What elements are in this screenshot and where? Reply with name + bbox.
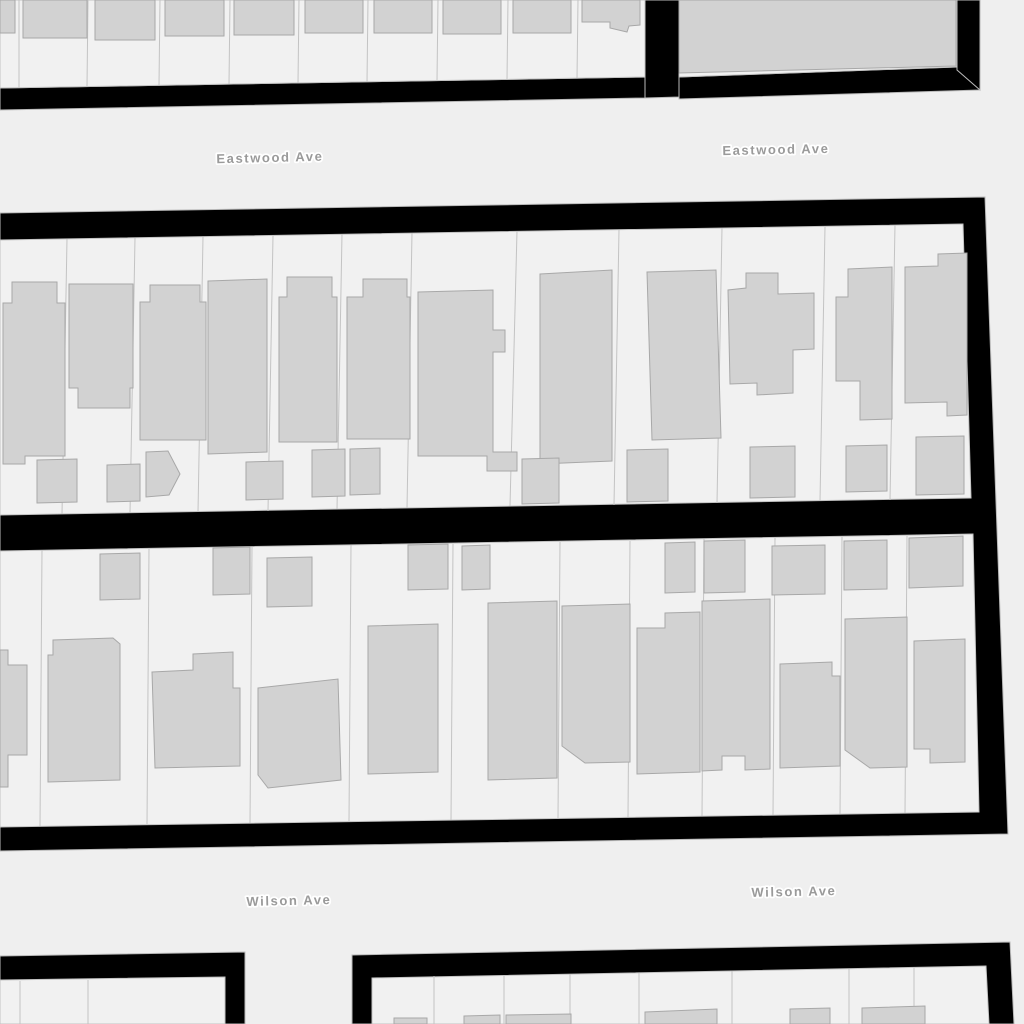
building-footprint [704, 540, 745, 593]
building-footprint [234, 0, 294, 35]
street-label: Wilson Ave [751, 883, 836, 900]
building-footprint [780, 662, 840, 768]
building-footprint [627, 449, 668, 502]
building-footprint [750, 446, 795, 498]
building-footprint [374, 0, 432, 33]
building-footprint [368, 624, 438, 774]
building-footprint [637, 612, 700, 774]
building-footprint [464, 1015, 500, 1024]
building-footprint [540, 270, 612, 464]
street-label: Eastwood Ave [722, 141, 829, 158]
building-footprint [679, 0, 956, 73]
building-footprint [702, 599, 770, 771]
building-footprint [846, 445, 887, 492]
building-footprint [645, 1009, 717, 1024]
building-footprint [909, 536, 963, 588]
building-footprint [140, 285, 206, 440]
building-footprint [95, 0, 155, 40]
building-footprint [506, 1014, 571, 1024]
building-footprint [562, 604, 630, 763]
block-border [645, 0, 679, 98]
building-footprint [69, 284, 133, 408]
building-footprint [347, 279, 410, 439]
building-footprint [772, 545, 825, 595]
building-footprint [513, 0, 571, 33]
building-footprint [488, 601, 557, 780]
parcel-map[interactable]: Eastwood AveEastwood AveWilson AveWilson… [0, 0, 1024, 1024]
building-footprint [408, 544, 448, 590]
building-footprint [905, 253, 967, 416]
building-footprint [23, 0, 87, 38]
building-footprint [443, 0, 501, 34]
map-canvas[interactable]: Eastwood AveEastwood AveWilson AveWilson… [0, 0, 1024, 1024]
building-footprint [258, 679, 341, 788]
building-footprint [312, 449, 345, 497]
building-footprint [213, 547, 250, 595]
building-footprint [48, 638, 120, 782]
building-footprint [305, 0, 363, 33]
building-footprint [862, 1006, 925, 1024]
street-label: Wilson Ave [246, 892, 331, 909]
building-footprint [790, 1008, 830, 1024]
building-footprint [165, 0, 224, 36]
building-footprint [665, 542, 695, 593]
building-footprint [246, 461, 283, 500]
building-footprint [279, 277, 337, 442]
building-footprint [916, 436, 964, 495]
building-footprint [914, 639, 965, 763]
building-footprint [350, 448, 380, 495]
street-label: Eastwood Ave [216, 149, 323, 167]
building-footprint [462, 545, 490, 590]
building-footprint [0, 0, 15, 33]
building-footprint [845, 617, 907, 768]
building-footprint [394, 1018, 427, 1024]
building-footprint [208, 279, 267, 454]
building-footprint [100, 553, 140, 600]
building-footprint [647, 270, 721, 440]
building-footprint [37, 459, 77, 503]
building-footprint [844, 540, 887, 590]
building-footprint [267, 557, 312, 607]
building-footprint [107, 464, 140, 502]
parcel-area [0, 977, 225, 1024]
building-footprint [522, 458, 559, 504]
building-footprint [3, 282, 65, 464]
